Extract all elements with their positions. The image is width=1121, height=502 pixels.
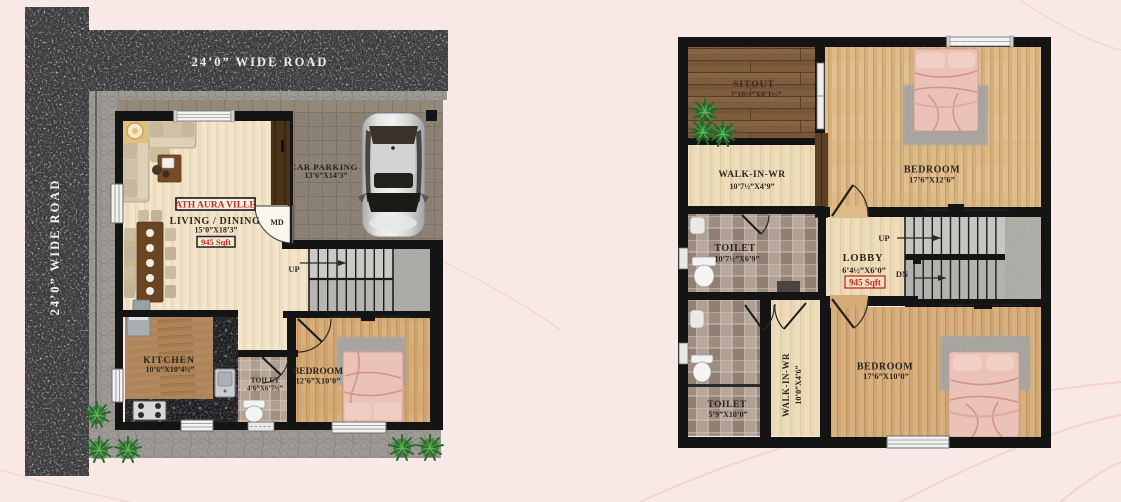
svg-text:UP: UP	[288, 264, 299, 274]
svg-text:MD: MD	[270, 218, 284, 227]
svg-text:TOILET: TOILET	[707, 400, 746, 410]
svg-text:24’0” WIDE ROAD: 24’0” WIDE ROAD	[192, 55, 329, 69]
svg-text:24’0” WIDE ROAD: 24’0” WIDE ROAD	[48, 179, 62, 316]
svg-text:ATH AURA VILLE: ATH AURA VILLE	[175, 201, 255, 211]
svg-text:10’0”X4’6”: 10’0”X4’6”	[794, 365, 803, 404]
svg-text:945 Sqft: 945 Sqft	[201, 237, 231, 247]
svg-text:15’0”X18’3”: 15’0”X18’3”	[194, 226, 237, 235]
svg-text:BEDROOM: BEDROOM	[293, 367, 343, 377]
svg-text:10’7½”X4’9”: 10’7½”X4’9”	[729, 182, 774, 191]
svg-text:SITOUT: SITOUT	[733, 80, 775, 90]
svg-text:WALK-IN-WR: WALK-IN-WR	[718, 170, 785, 180]
svg-text:TOILET: TOILET	[251, 376, 280, 385]
svg-text:LOBBY: LOBBY	[843, 253, 884, 264]
svg-text:17’6”X10’0”: 17’6”X10’0”	[863, 371, 909, 381]
svg-text:TOILET: TOILET	[714, 243, 755, 254]
svg-text:945 Sqft: 945 Sqft	[849, 278, 881, 288]
svg-text:7’10½”X8’1½”: 7’10½”X8’1½”	[730, 90, 781, 99]
svg-text:12’6”X10’0”: 12’6”X10’0”	[296, 377, 341, 386]
svg-text:UP: UP	[878, 233, 889, 243]
svg-text:4’6”X6’7½”: 4’6”X6’7½”	[247, 385, 283, 393]
svg-text:17’6”X12’6”: 17’6”X12’6”	[909, 174, 955, 184]
svg-text:10’7½”X6’9”: 10’7½”X6’9”	[714, 255, 759, 264]
svg-text:6’4½”X6’0”: 6’4½”X6’0”	[842, 265, 886, 275]
svg-text:DN: DN	[896, 269, 909, 279]
svg-text:10’6”X10’4½”: 10’6”X10’4½”	[145, 365, 194, 374]
svg-text:13’6”X14’3”: 13’6”X14’3”	[304, 171, 347, 180]
svg-text:WALK-IN-WR: WALK-IN-WR	[781, 353, 791, 417]
svg-text:5’9”X10’0”: 5’9”X10’0”	[708, 410, 747, 419]
